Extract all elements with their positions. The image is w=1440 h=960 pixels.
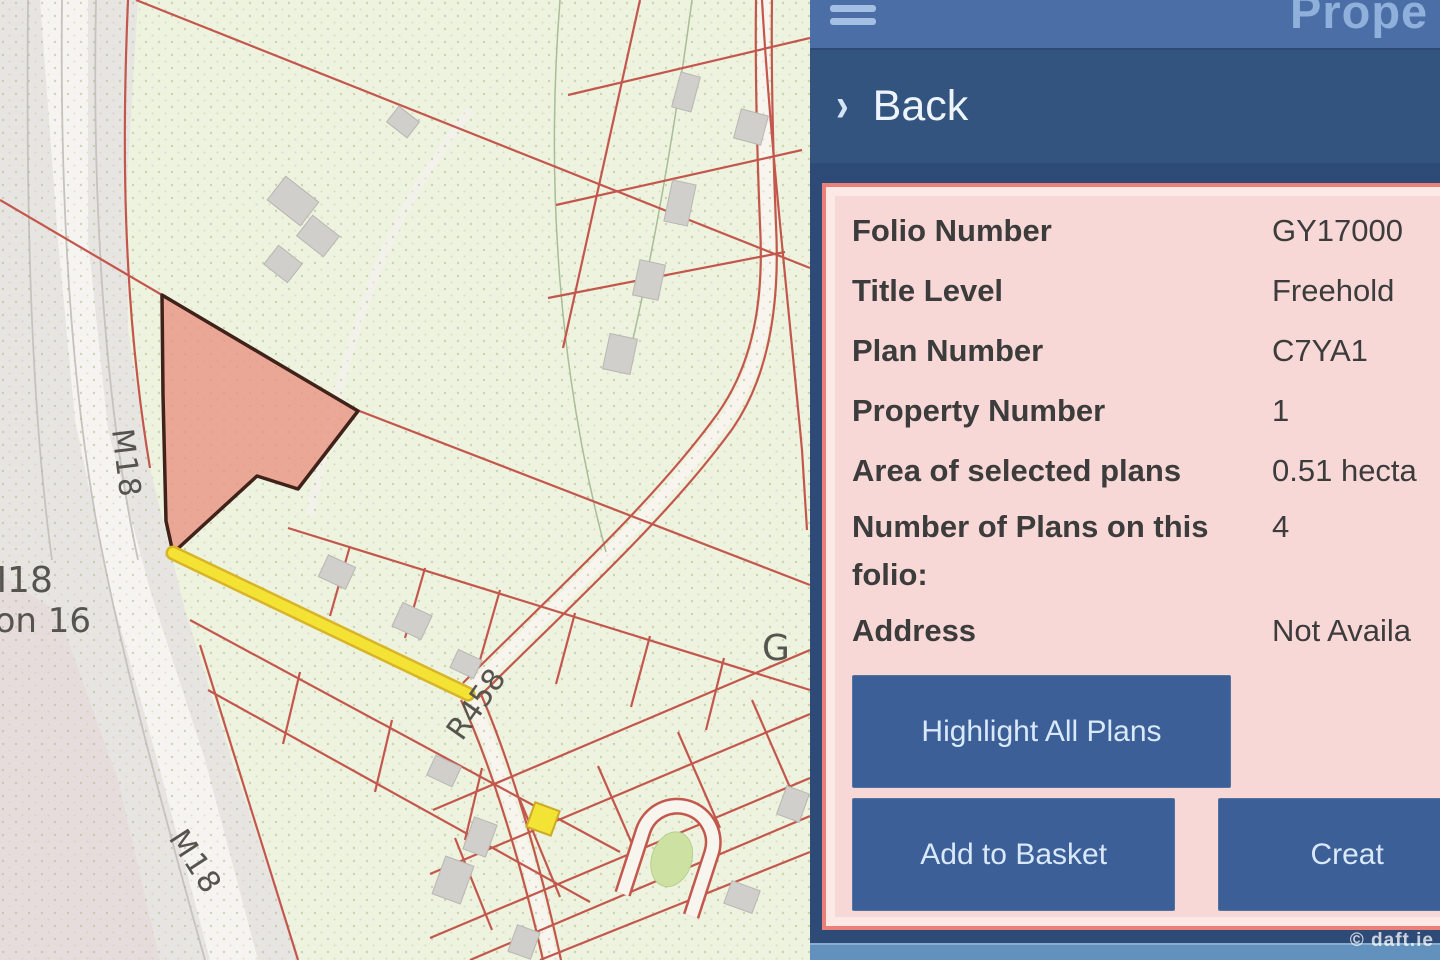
area-row: Area of selected plans 0.51 hecta	[852, 441, 1440, 501]
bottom-bar	[810, 943, 1440, 960]
folio-info-box: Folio Number GY17000 Title Level Freehol…	[822, 183, 1440, 930]
add-to-basket-button[interactable]: Add to Basket	[852, 798, 1175, 911]
panel-title: Prope	[1290, 0, 1428, 39]
townland-label-partial: G	[762, 628, 790, 669]
plan-number-row: Plan Number C7YA1	[852, 321, 1440, 381]
map-svg: M18 M18 M18 Junction 16 R458 G	[0, 0, 810, 960]
back-label: Back	[873, 82, 969, 131]
back-button[interactable]: › Back	[810, 50, 1440, 163]
daft-watermark: © daft.ie	[1350, 930, 1434, 952]
junction-label: Junction 16	[0, 601, 91, 641]
panel-header: Prope	[810, 0, 1440, 50]
highlight-all-plans-button[interactable]: Highlight All Plans	[852, 675, 1231, 788]
land-registry-map-viewer: M18 M18 M18 Junction 16 R458 G Prope › B…	[0, 0, 1440, 960]
cadastral-map[interactable]: M18 M18 M18 Junction 16 R458 G	[0, 0, 810, 960]
plan-count-row: Number of Plans on this folio: 4	[852, 501, 1440, 601]
property-number-row: Property Number 1	[852, 381, 1440, 441]
menu-icon[interactable]	[830, 0, 876, 31]
address-row: Address Not Availa	[852, 601, 1440, 661]
motorway-label-clipped: M18	[0, 560, 53, 601]
property-details-panel: Prope › Back Folio Number GY17000 Title …	[810, 0, 1440, 960]
folio-number-row: Folio Number GY17000	[852, 201, 1440, 261]
title-level-row: Title Level Freehold	[852, 261, 1440, 321]
create-button[interactable]: Creat	[1218, 798, 1440, 911]
chevron-right-icon: ›	[836, 80, 849, 134]
